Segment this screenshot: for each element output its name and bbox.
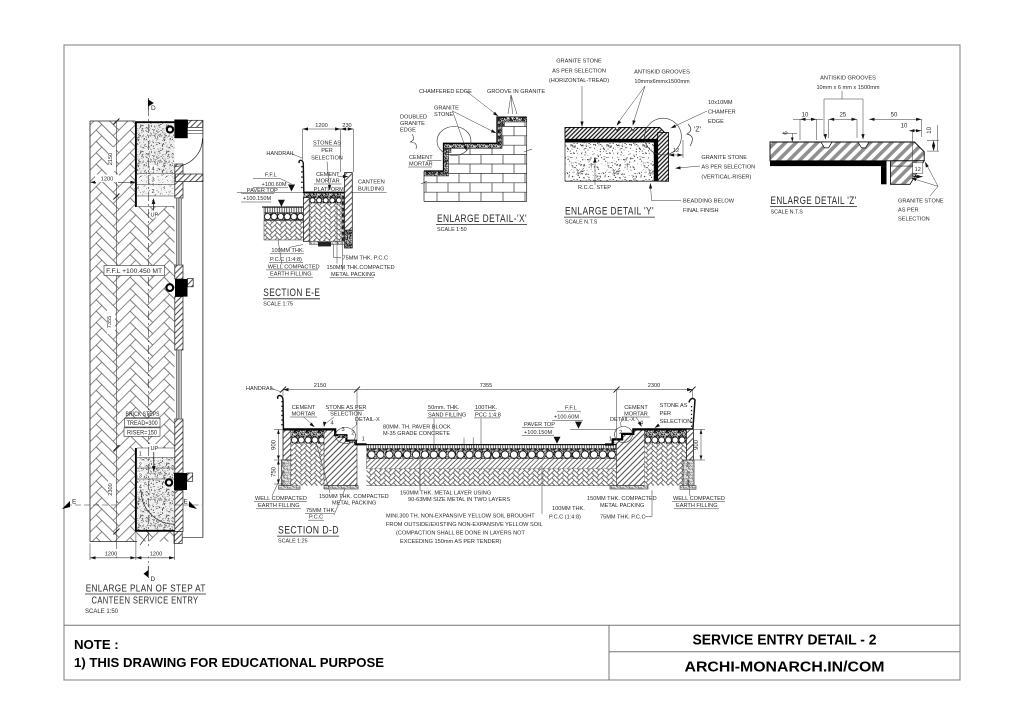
svg-text:750: 750 <box>272 466 278 477</box>
svg-text:SERVICE ENTRY DETAIL - 2: SERVICE ENTRY DETAIL - 2 <box>693 633 877 649</box>
svg-text:'Z': 'Z' <box>694 127 701 134</box>
svg-text:MORTAR: MORTAR <box>624 411 648 417</box>
svg-text:UP: UP <box>151 446 159 452</box>
svg-text:RISER=150: RISER=150 <box>127 430 158 436</box>
svg-text:SELECTION: SELECTION <box>660 419 692 425</box>
svg-text:2300: 2300 <box>108 483 114 495</box>
svg-text:GRANITE: GRANITE <box>400 121 425 127</box>
svg-text:MORTAR: MORTAR <box>316 179 340 185</box>
svg-text:100MM THK.: 100MM THK. <box>271 248 304 254</box>
svg-text:EARTH FILLING: EARTH FILLING <box>676 503 718 509</box>
svg-text:2: 2 <box>139 463 142 469</box>
svg-text:BEADDING BELOW: BEADDING BELOW <box>683 198 735 204</box>
svg-text:150MM THK. COMPACTED: 150MM THK. COMPACTED <box>319 494 389 500</box>
svg-text:EDGE: EDGE <box>400 127 416 133</box>
svg-text:PAVER TOP: PAVER TOP <box>247 188 278 194</box>
svg-text:SELECTION: SELECTION <box>330 411 362 417</box>
svg-text:(HORIZONTAL-TREAD): (HORIZONTAL-TREAD) <box>549 78 609 84</box>
svg-text:75MM THK.: 75MM THK. <box>306 508 336 514</box>
svg-text:FROM OUTSIDE/EXISTING NON-EXPA: FROM OUTSIDE/EXISTING NON-EXPANSIVE YELL… <box>386 522 543 528</box>
svg-text:CANTEEN: CANTEEN <box>358 179 385 185</box>
svg-text:GRANITE STONE: GRANITE STONE <box>898 198 944 204</box>
svg-text:1200: 1200 <box>105 551 117 557</box>
svg-text:(COMPACTION SHALL BE DONE IN L: (COMPACTION SHALL BE DONE IN LAYERS NOT <box>396 530 525 536</box>
svg-text:SCALE 1:50: SCALE 1:50 <box>437 227 467 233</box>
svg-text:50mm. THK.: 50mm. THK. <box>428 405 460 411</box>
svg-text:PAVER TOP: PAVER TOP <box>524 422 555 428</box>
svg-text:10: 10 <box>927 126 933 133</box>
svg-text:2: 2 <box>619 430 622 436</box>
svg-text:GRANITE STONE: GRANITE STONE <box>701 155 747 161</box>
svg-text:10x10MM: 10x10MM <box>708 100 733 106</box>
svg-text:CEMENT: CEMENT <box>409 155 433 161</box>
svg-text:100THK.: 100THK. <box>475 405 498 411</box>
svg-text:FINAL FINISH: FINAL FINISH <box>683 208 719 214</box>
svg-text:2: 2 <box>152 189 155 195</box>
svg-text:AS PER: AS PER <box>898 207 919 213</box>
svg-text:80MM. TH. PAVER BLOCK: 80MM. TH. PAVER BLOCK <box>383 424 451 430</box>
svg-text:GRANITE STONE: GRANITE STONE <box>556 59 602 65</box>
svg-text:MORTAR: MORTAR <box>292 411 316 417</box>
svg-text:10: 10 <box>901 124 908 130</box>
svg-text:DOUBLED: DOUBLED <box>400 114 427 120</box>
svg-text:10mmx6mmx1500mm: 10mmx6mmx1500mm <box>634 79 690 85</box>
svg-text:+100.150M: +100.150M <box>524 430 552 436</box>
svg-text:ANTISKID GROOVES: ANTISKID GROOVES <box>820 75 876 81</box>
svg-text:ENLARGE DETAIL-'X': ENLARGE DETAIL-'X' <box>437 213 527 225</box>
svg-text:CEMENT: CEMENT <box>292 405 316 411</box>
svg-text:WELL COMPACTED: WELL COMPACTED <box>673 496 725 502</box>
svg-text:7355: 7355 <box>107 316 113 328</box>
svg-text:2150: 2150 <box>108 153 114 165</box>
svg-text:100MM THK.: 100MM THK. <box>552 506 585 512</box>
svg-text:150MM THK. COMPACTED: 150MM THK. COMPACTED <box>587 496 657 502</box>
svg-text:+100.150M: +100.150M <box>243 196 271 202</box>
svg-text:ENLARGE PLAN OF STEP AT: ENLARGE PLAN OF STEP AT <box>86 583 206 594</box>
svg-text:4: 4 <box>331 421 334 427</box>
svg-text:3: 3 <box>152 178 155 184</box>
svg-text:MINI.300 TH. NON-EXPANSIVE YEL: MINI.300 TH. NON-EXPANSIVE YELLOW SOIL B… <box>386 513 535 519</box>
svg-text:(VERTICAL-RISER): (VERTICAL-RISER) <box>701 174 751 180</box>
svg-text:DETAIL-X: DETAIL-X <box>355 417 380 423</box>
svg-text:E: E <box>72 499 77 506</box>
svg-text:2150: 2150 <box>314 383 326 389</box>
svg-text:SCALE 1:50: SCALE 1:50 <box>85 609 119 615</box>
svg-text:MORTAR: MORTAR <box>409 162 433 168</box>
svg-text:EARTH FILLING: EARTH FILLING <box>270 272 312 278</box>
svg-text:R.C.C. STEP: R.C.C. STEP <box>578 185 611 191</box>
svg-text:STONE AS PER: STONE AS PER <box>326 405 367 411</box>
svg-text:75MM THK. P.C.C: 75MM THK. P.C.C <box>343 256 389 262</box>
svg-text:P.C.C: P.C.C <box>309 515 323 521</box>
svg-text:GROOVE IN GRANITE: GROOVE IN GRANITE <box>487 89 545 95</box>
svg-text:STONE: STONE <box>434 112 453 118</box>
svg-text:F.F.L: F.F.L <box>565 406 577 412</box>
svg-text:EARTH FILLING: EARTH FILLING <box>258 503 300 509</box>
svg-text:4: 4 <box>139 485 142 491</box>
svg-text:F.F.L +100.450 MT: F.F.L +100.450 MT <box>106 269 162 275</box>
svg-text:M-35 GRADE CONCRETE: M-35 GRADE CONCRETE <box>383 431 450 437</box>
svg-text:EDGE: EDGE <box>708 119 724 125</box>
svg-text:ARCHI-MONARCH.IN/COM: ARCHI-MONARCH.IN/COM <box>685 660 885 676</box>
svg-text:2300: 2300 <box>648 383 660 389</box>
svg-text:SECTION E-E: SECTION E-E <box>263 287 320 299</box>
svg-text:HANDRAIL: HANDRAIL <box>266 151 294 157</box>
svg-text:EXCEEDING 150mm AS PER TENDER): EXCEEDING 150mm AS PER TENDER) <box>400 539 501 545</box>
svg-text:SAND FILLING: SAND FILLING <box>428 412 466 418</box>
svg-text:D: D <box>151 576 156 583</box>
svg-text:CHAMFER: CHAMFER <box>708 110 736 116</box>
svg-text:ANTISKID GROOVES: ANTISKID GROOVES <box>634 70 690 76</box>
svg-text:D: D <box>151 105 156 112</box>
svg-text:P.C.C (1:4:8): P.C.C (1:4:8) <box>549 515 581 521</box>
svg-text:12: 12 <box>673 148 679 154</box>
svg-text:CEMENT: CEMENT <box>316 172 340 178</box>
svg-text:CEMENT: CEMENT <box>624 405 648 411</box>
svg-text:GRANITE: GRANITE <box>434 106 459 112</box>
svg-text:1: 1 <box>362 437 365 443</box>
svg-text:STONE AS: STONE AS <box>660 403 688 409</box>
svg-text:1) THIS DRAWING FOR EDUCATIONA: 1) THIS DRAWING FOR EDUCATIONAL PURPOSE <box>74 655 384 670</box>
svg-text:10mm x 6 mm x 1500mm: 10mm x 6 mm x 1500mm <box>816 85 879 91</box>
svg-text:HANDRAIL: HANDRAIL <box>246 386 274 392</box>
svg-text:SELECTION: SELECTION <box>898 216 930 222</box>
svg-text:P.C.C (1:4:8): P.C.C (1:4:8) <box>270 257 302 263</box>
svg-text:900: 900 <box>694 439 700 450</box>
svg-text:25: 25 <box>839 113 846 119</box>
svg-text:7355: 7355 <box>480 383 492 389</box>
svg-text:WELL COMPACTED: WELL COMPACTED <box>268 264 320 270</box>
svg-text:SECTION D-D: SECTION D-D <box>278 524 339 536</box>
svg-text:AS PER SELECTION: AS PER SELECTION <box>701 165 755 171</box>
svg-text:PER: PER <box>660 411 672 417</box>
svg-text:230: 230 <box>342 123 351 129</box>
svg-text:SCALE N.T.S: SCALE N.T.S <box>771 210 804 216</box>
svg-text:TREAD=300: TREAD=300 <box>127 421 159 427</box>
svg-text:1: 1 <box>609 436 612 442</box>
svg-text:NOTE :: NOTE : <box>74 637 119 652</box>
svg-text:12: 12 <box>915 167 921 173</box>
svg-text:CHAMFERED EDGE: CHAMFERED EDGE <box>419 89 472 95</box>
svg-text:50: 50 <box>891 113 898 119</box>
svg-text:ENLARGE DETAIL 'Z': ENLARGE DETAIL 'Z' <box>771 195 857 207</box>
svg-text:3: 3 <box>139 474 142 480</box>
svg-text:150MM THK. METAL LAYER USING: 150MM THK. METAL LAYER USING <box>400 490 491 496</box>
svg-text:SCALE 1:25: SCALE 1:25 <box>278 539 308 545</box>
svg-text:SCALE 1:75: SCALE 1:75 <box>263 301 293 307</box>
svg-text:PCC 1:4:8: PCC 1:4:8 <box>475 412 501 418</box>
svg-text:PER: PER <box>321 148 333 154</box>
svg-text:900: 900 <box>272 439 278 450</box>
svg-text:DETAIL-X: DETAIL-X <box>610 417 635 423</box>
svg-text:AS PER SELECTION: AS PER SELECTION <box>552 68 606 74</box>
svg-text:PLATFORM: PLATFORM <box>314 187 344 193</box>
svg-text:+100.60M: +100.60M <box>554 415 579 421</box>
svg-text:BUILDING: BUILDING <box>358 187 384 193</box>
svg-text:ENLARGE DETAIL 'Y': ENLARGE DETAIL 'Y' <box>565 205 654 217</box>
svg-text:UP: UP <box>151 213 159 219</box>
svg-text:150MM THK.COMPACTED: 150MM THK.COMPACTED <box>327 265 395 271</box>
svg-text:1200: 1200 <box>315 123 327 129</box>
svg-text:75MM THK. P.C.C: 75MM THK. P.C.C <box>600 514 646 520</box>
svg-text:SELECTION: SELECTION <box>311 156 343 162</box>
svg-text:CANTEEN SERVICE ENTRY: CANTEEN SERVICE ENTRY <box>92 596 199 607</box>
svg-text:1200: 1200 <box>101 177 113 183</box>
svg-text:METAL PACKING: METAL PACKING <box>332 500 376 506</box>
svg-text:10: 10 <box>802 113 809 119</box>
svg-text:SCALE N.T.S: SCALE N.T.S <box>565 220 598 226</box>
svg-text:4: 4 <box>152 167 155 173</box>
svg-text:WELL COMPACTED: WELL COMPACTED <box>255 496 307 502</box>
svg-text:F.F.L: F.F.L <box>265 173 277 179</box>
svg-text:METAL PACKING: METAL PACKING <box>331 272 375 278</box>
svg-text:90-63MM SIZE METAL IN TWO LAYE: 90-63MM SIZE METAL IN TWO LAYERS <box>408 497 510 503</box>
svg-text:E: E <box>184 499 189 506</box>
svg-text:METAL PACKING: METAL PACKING <box>600 503 644 509</box>
svg-text:1: 1 <box>139 452 142 458</box>
svg-text:1200: 1200 <box>150 551 162 557</box>
